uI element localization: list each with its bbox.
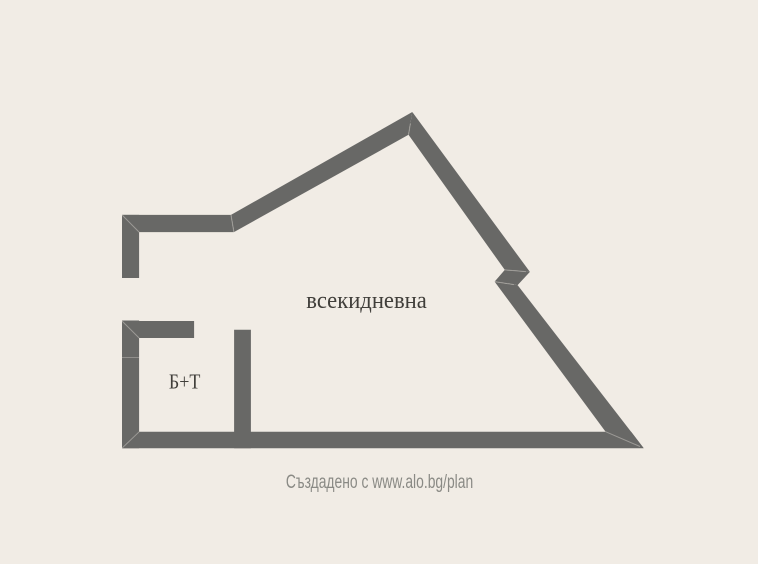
svg-text:всекидневна: всекидневна bbox=[306, 288, 427, 314]
svg-text:Б+Т: Б+Т bbox=[169, 370, 201, 394]
svg-text:Създадено с www.alo.bg/plan: Създадено с www.alo.bg/plan bbox=[286, 472, 473, 493]
